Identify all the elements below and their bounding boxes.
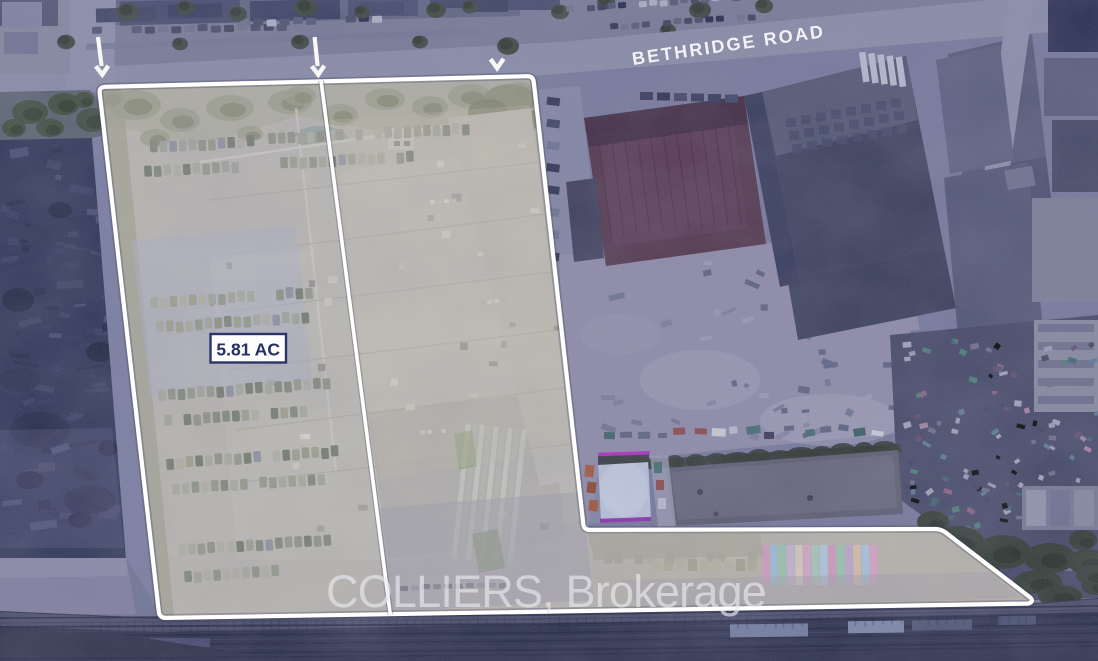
- svg-text:COLLIERS, Brokerage: COLLIERS, Brokerage: [326, 566, 766, 617]
- svg-text:5.81 AC: 5.81 AC: [216, 340, 280, 360]
